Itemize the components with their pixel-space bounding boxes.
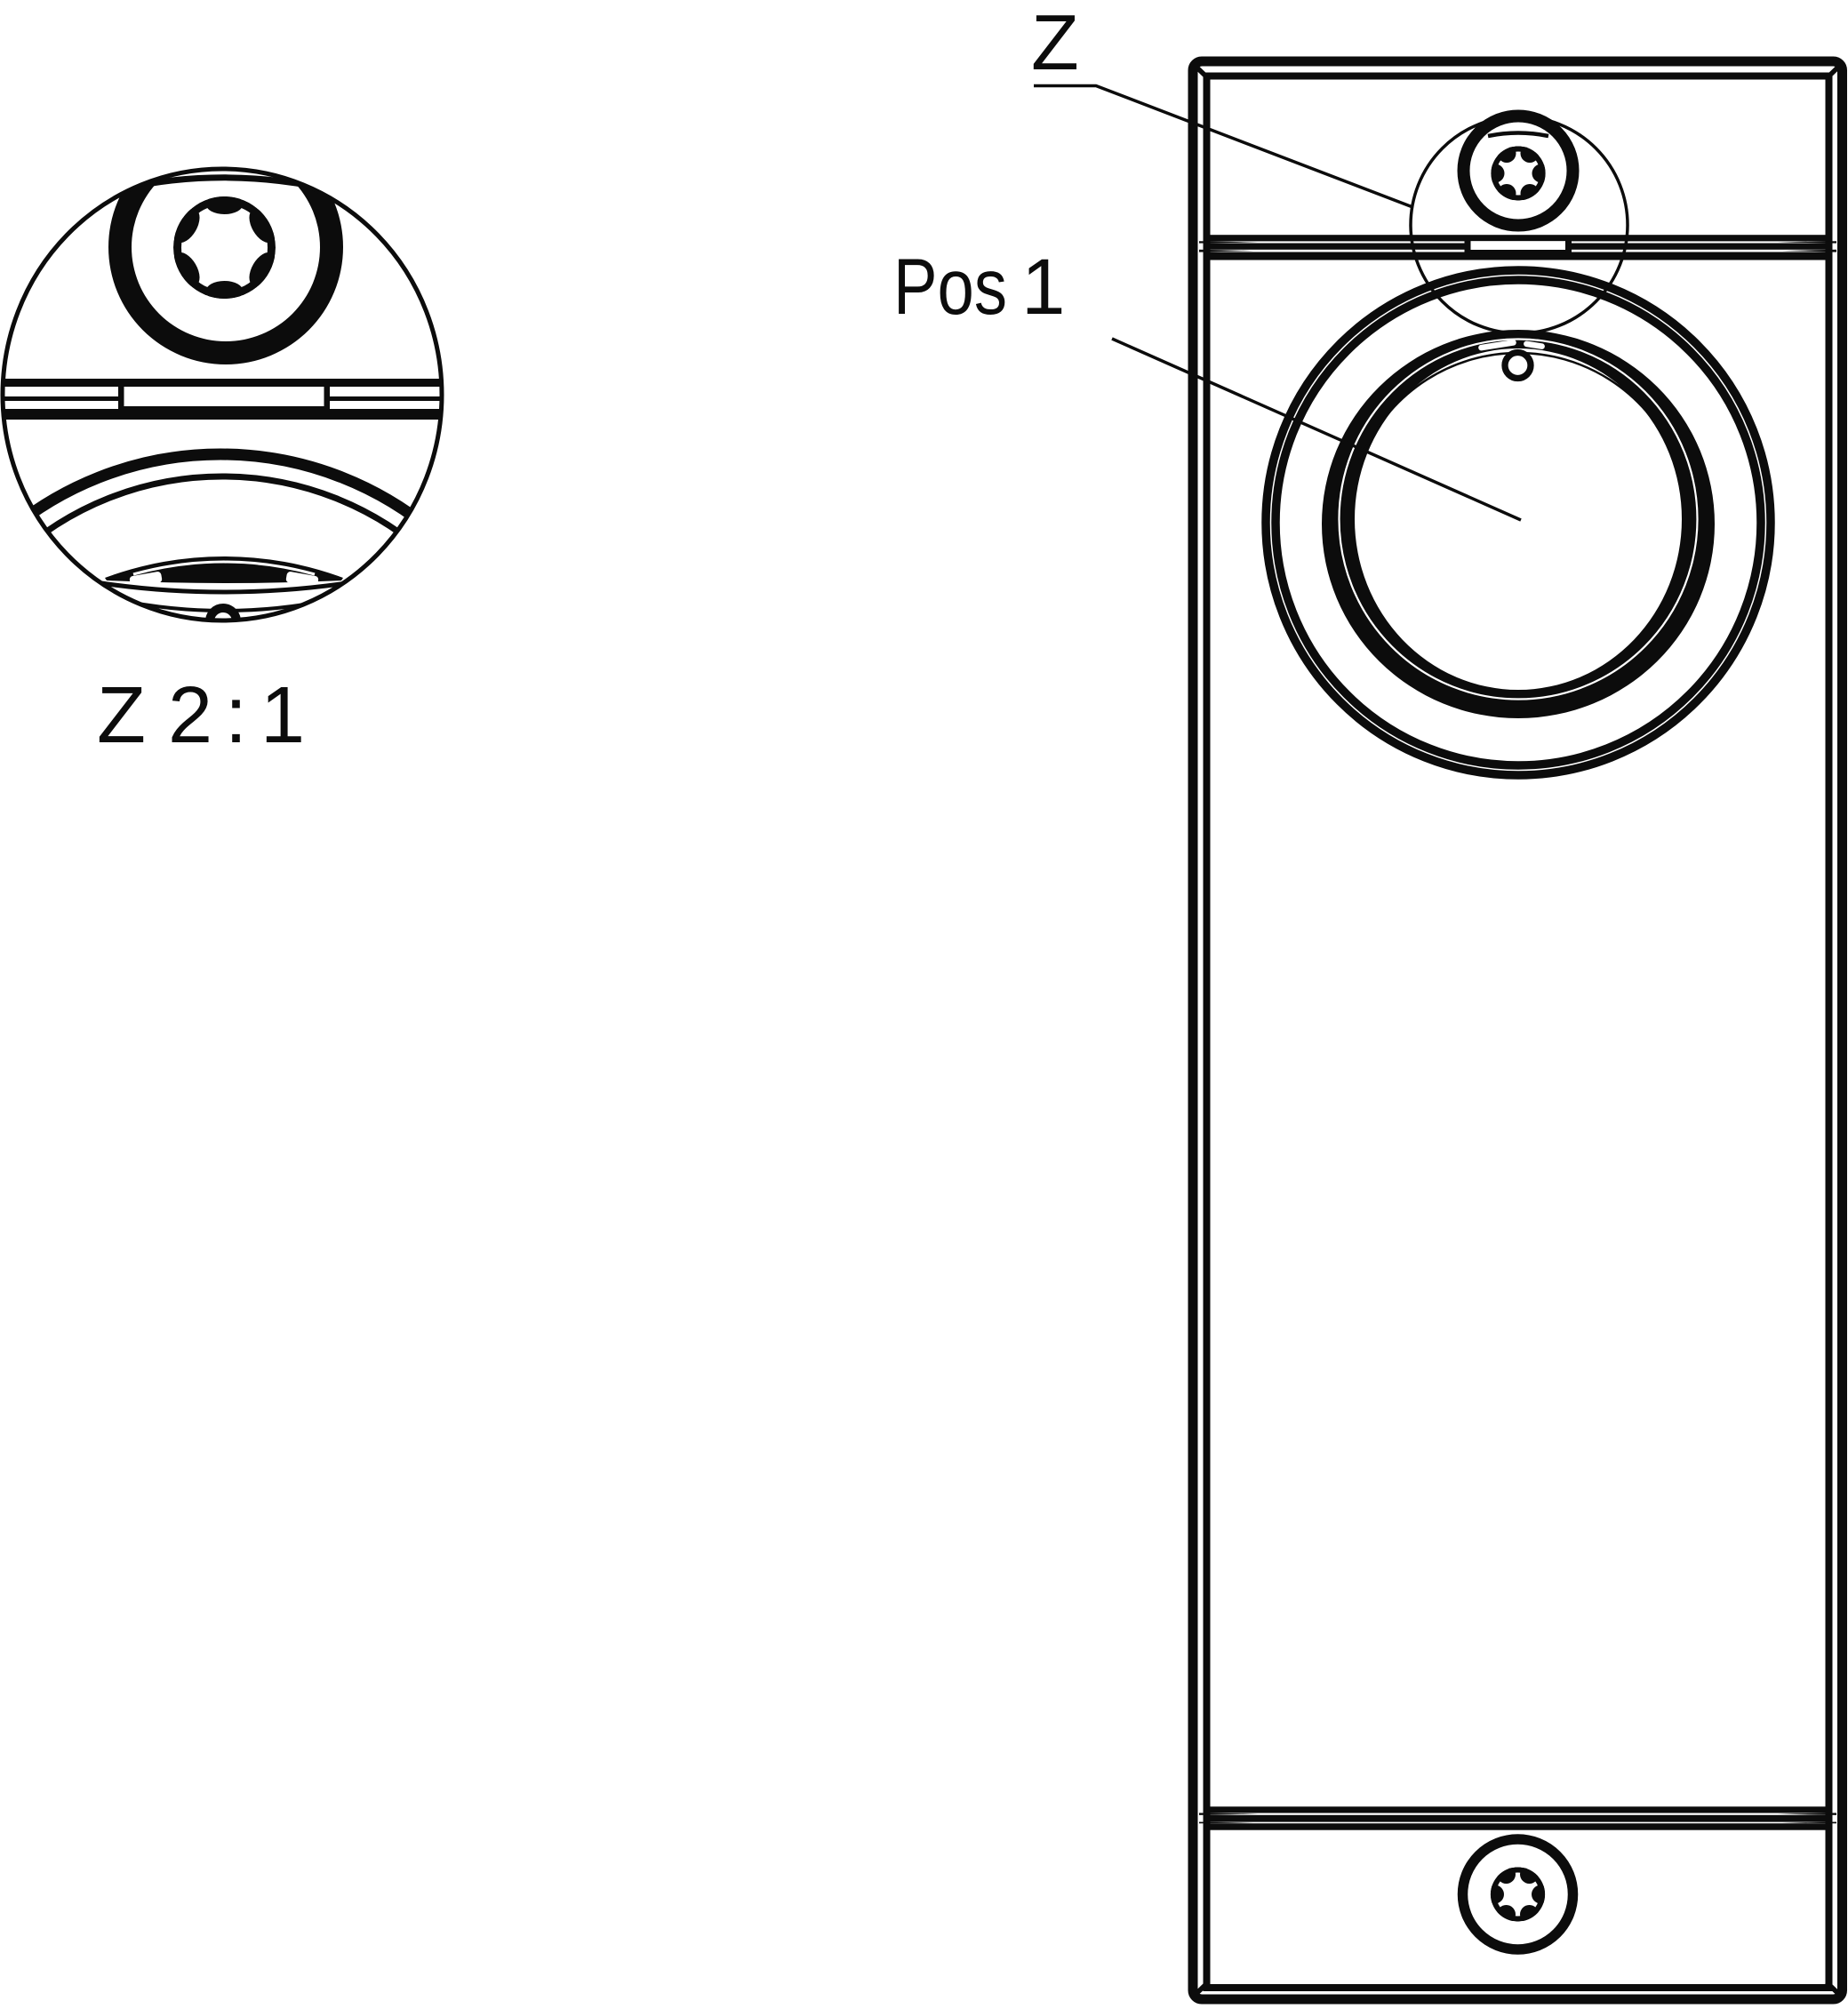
svg-text:2: 2 xyxy=(168,671,212,760)
svg-text:Z: Z xyxy=(97,671,146,760)
svg-text::: : xyxy=(225,671,247,760)
svg-text:Z: Z xyxy=(1031,0,1079,86)
svg-text:1: 1 xyxy=(1021,242,1066,331)
svg-text:1: 1 xyxy=(260,671,305,760)
svg-text:Pos: Pos xyxy=(893,242,1007,331)
